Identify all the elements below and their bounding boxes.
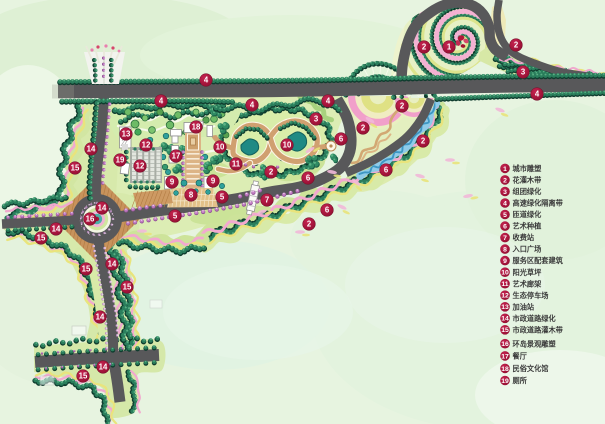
svg-text:环岛景观雕塑: 环岛景观雕塑 — [513, 339, 557, 348]
svg-text:8: 8 — [189, 191, 194, 200]
svg-text:11: 11 — [501, 281, 508, 288]
svg-text:入口广场: 入口广场 — [512, 245, 542, 254]
svg-text:加油站: 加油站 — [512, 302, 535, 311]
svg-text:14: 14 — [96, 313, 105, 322]
svg-text:12: 12 — [501, 293, 509, 300]
svg-text:15: 15 — [82, 265, 91, 274]
svg-text:6: 6 — [306, 174, 311, 183]
svg-text:14: 14 — [98, 204, 107, 213]
svg-text:3: 3 — [314, 115, 319, 124]
svg-text:1: 1 — [503, 166, 507, 173]
svg-text:餐厅: 餐厅 — [512, 352, 527, 361]
svg-text:6: 6 — [503, 224, 507, 231]
svg-text:2: 2 — [400, 102, 405, 111]
svg-text:18: 18 — [192, 123, 201, 132]
svg-text:花灌木带: 花灌木带 — [513, 176, 542, 185]
svg-text:14: 14 — [99, 363, 108, 372]
svg-text:3: 3 — [521, 68, 526, 77]
svg-text:服务区配套建筑: 服务区配套建筑 — [513, 256, 564, 265]
svg-text:10: 10 — [216, 143, 225, 152]
svg-text:4: 4 — [250, 101, 255, 110]
svg-text:9: 9 — [170, 178, 175, 187]
svg-text:12: 12 — [142, 141, 151, 150]
svg-text:5: 5 — [173, 212, 178, 221]
svg-text:15: 15 — [501, 327, 509, 334]
svg-text:4: 4 — [535, 90, 540, 99]
svg-text:市政道路灌木带: 市政道路灌木带 — [513, 325, 563, 334]
svg-text:组团绿化: 组团绿化 — [513, 187, 543, 196]
svg-text:厕所: 厕所 — [513, 376, 528, 385]
svg-text:市政道路绿化: 市政道路绿化 — [513, 314, 557, 323]
svg-text:7: 7 — [503, 235, 507, 242]
svg-text:18: 18 — [501, 366, 509, 373]
svg-text:17: 17 — [172, 152, 181, 161]
svg-text:17: 17 — [501, 353, 509, 360]
svg-text:11: 11 — [232, 160, 241, 169]
svg-text:19: 19 — [116, 156, 125, 165]
svg-text:2: 2 — [514, 41, 519, 50]
svg-text:14: 14 — [501, 316, 509, 323]
svg-text:6: 6 — [339, 135, 344, 144]
svg-text:民俗文化馆: 民俗文化馆 — [513, 364, 549, 373]
svg-text:3: 3 — [503, 189, 507, 196]
svg-text:艺术种植: 艺术种植 — [513, 222, 543, 231]
svg-text:艺术廊架: 艺术廊架 — [513, 279, 543, 288]
svg-text:9: 9 — [503, 258, 507, 265]
svg-text:1: 1 — [447, 43, 452, 52]
svg-text:14: 14 — [52, 225, 61, 234]
svg-text:城市雕塑: 城市雕塑 — [513, 164, 543, 173]
svg-text:2: 2 — [361, 124, 366, 133]
svg-text:8: 8 — [503, 247, 507, 254]
svg-text:4: 4 — [204, 76, 209, 85]
svg-text:16: 16 — [501, 341, 509, 348]
svg-text:2: 2 — [421, 137, 426, 146]
svg-text:10: 10 — [501, 270, 509, 277]
svg-text:10: 10 — [283, 141, 292, 150]
svg-text:匝道绿化: 匝道绿化 — [513, 210, 543, 219]
svg-text:4: 4 — [326, 97, 331, 106]
svg-text:15: 15 — [37, 234, 46, 243]
svg-text:2: 2 — [503, 177, 507, 184]
svg-text:7: 7 — [265, 196, 269, 205]
svg-text:收费站: 收费站 — [513, 233, 535, 242]
svg-text:9: 9 — [211, 177, 216, 186]
svg-text:6: 6 — [325, 206, 330, 215]
svg-text:19: 19 — [501, 378, 509, 385]
svg-text:5: 5 — [503, 212, 507, 219]
svg-text:2: 2 — [422, 43, 427, 52]
svg-text:生态停车场: 生态停车场 — [513, 291, 549, 300]
svg-text:16: 16 — [86, 215, 95, 224]
svg-text:14: 14 — [108, 260, 117, 269]
svg-text:2: 2 — [307, 220, 312, 229]
svg-text:14: 14 — [87, 145, 96, 154]
svg-text:5: 5 — [220, 193, 225, 202]
svg-text:13: 13 — [122, 130, 131, 139]
svg-text:12: 12 — [136, 162, 145, 171]
svg-text:4: 4 — [159, 97, 164, 106]
svg-text:15: 15 — [71, 164, 80, 173]
svg-text:阳光草坪: 阳光草坪 — [513, 268, 543, 277]
svg-text:4: 4 — [503, 200, 507, 207]
svg-text:6: 6 — [384, 166, 389, 175]
svg-text:15: 15 — [123, 283, 132, 292]
svg-text:高速绿化隔离带: 高速绿化隔离带 — [513, 199, 563, 208]
svg-text:13: 13 — [501, 304, 509, 311]
svg-text:2: 2 — [269, 168, 274, 177]
svg-text:15: 15 — [79, 372, 88, 381]
